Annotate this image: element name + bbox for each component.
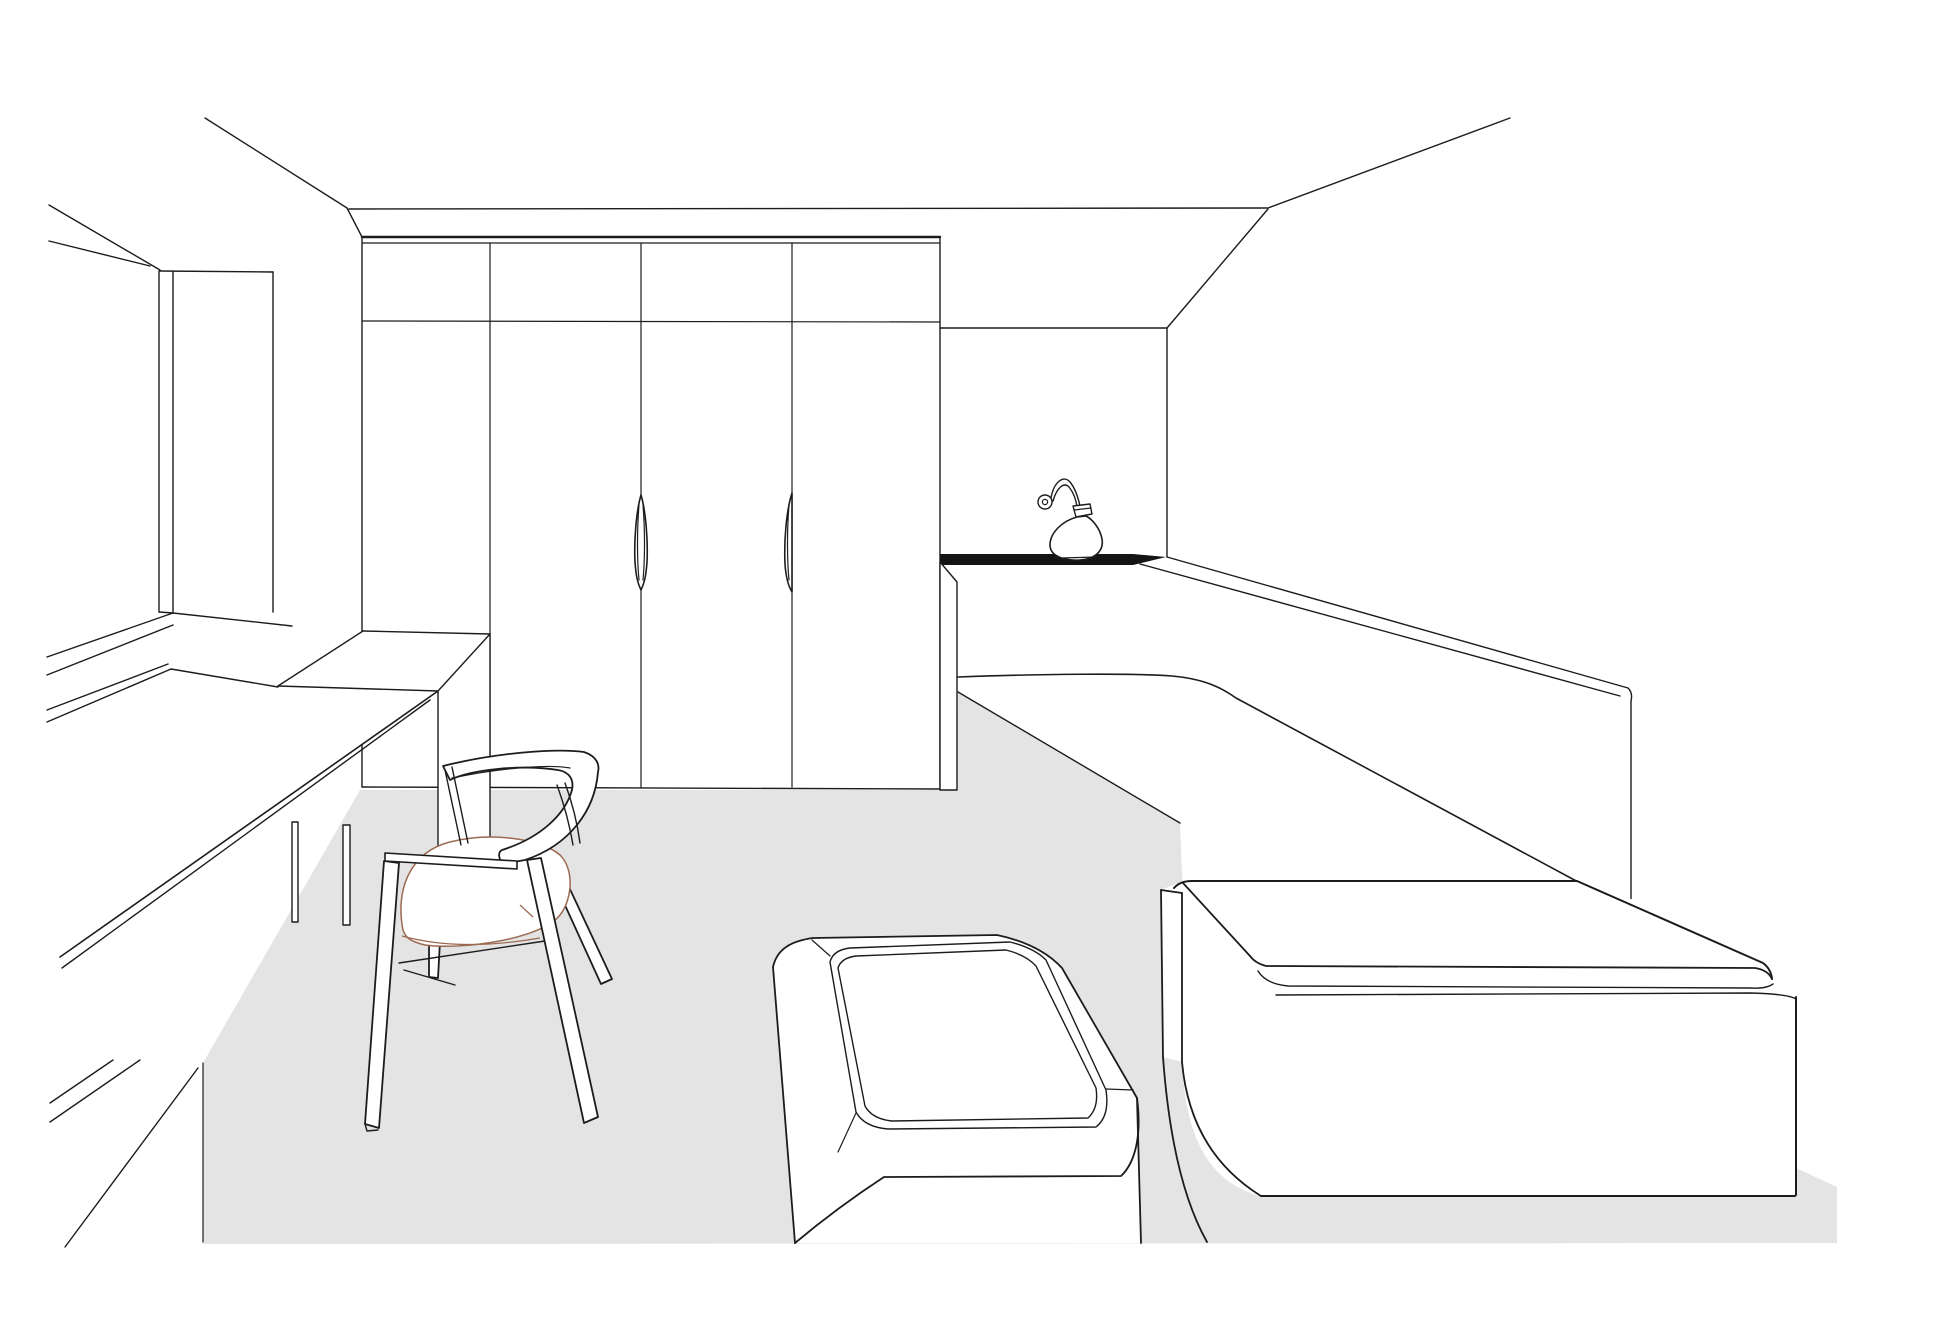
desk-cabinet-front-edge xyxy=(65,1068,198,1247)
bench-end-panel xyxy=(940,562,957,790)
wardrobe-handle-left xyxy=(635,495,648,590)
wardrobe-rail-line xyxy=(362,321,940,322)
back-ledge-endcap xyxy=(1628,688,1632,701)
lamp-mount-icon xyxy=(1038,495,1052,509)
platform-box-with-mattress xyxy=(1161,881,1796,1242)
ceiling-diagonal-left xyxy=(205,118,347,208)
ceiling-diagonal-right xyxy=(1268,118,1510,208)
interior-line-drawing xyxy=(0,0,1955,1342)
window-frame xyxy=(47,205,292,675)
counter-strip xyxy=(940,554,1166,565)
desk-leg-2 xyxy=(343,825,350,925)
box-silhouette xyxy=(1161,881,1796,1196)
window-jamb-bottom xyxy=(159,612,173,613)
desk-cabinet-edge-2 xyxy=(50,1060,140,1122)
drawing-canvas xyxy=(0,0,1955,1342)
lamp-shade xyxy=(1050,516,1102,560)
soffit-edge xyxy=(1167,209,1268,328)
window-header-outer xyxy=(49,205,160,270)
ceiling-corner-left xyxy=(347,208,362,237)
window-head-edge xyxy=(160,271,273,272)
back-ledge-bottom xyxy=(1140,564,1620,696)
back-ledge-top xyxy=(1167,557,1628,688)
wall-lamp xyxy=(1038,479,1102,560)
desk-leg-1 xyxy=(292,822,298,922)
lamp-socket xyxy=(1073,504,1092,517)
desk-cabinet-edge-1 xyxy=(50,1060,113,1103)
window-header-inner xyxy=(49,241,150,266)
window-sill-front xyxy=(173,613,292,626)
ceiling-edges xyxy=(205,118,1510,557)
ceiling-wall-line xyxy=(349,208,1267,209)
